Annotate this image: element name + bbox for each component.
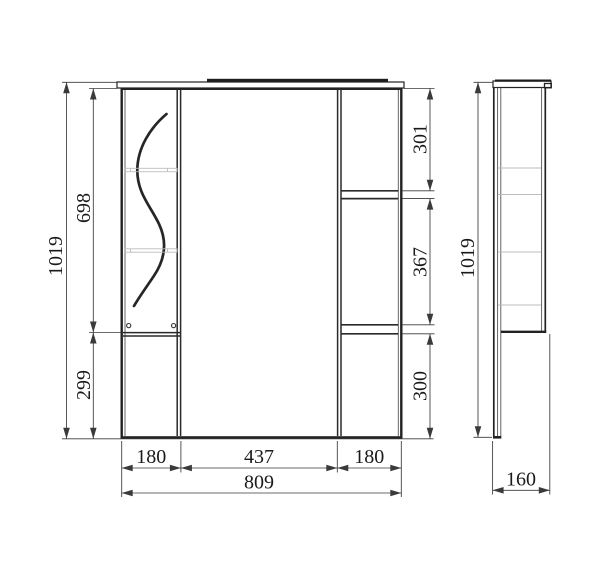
dim-label-depth: 160 [506,469,536,491]
left-shelf-edge [125,249,178,252]
dim-label-right-bottom: 300 [410,371,432,401]
side-view [493,81,551,438]
cornice-side [493,81,551,88]
furniture-technical-drawing: 1019 698 299 301 367 300 180 437 180 809 [0,0,600,579]
wave-ornament [134,114,167,306]
dim-label-total-height: 1019 [45,236,67,276]
dim-label-bottom-right: 180 [354,446,384,468]
front-view [117,79,404,438]
side-dimensions: 1019 160 [457,82,550,494]
dim-label-right-top: 301 [410,124,432,154]
door-fitting-dot [127,324,131,328]
dim-label-bottom-middle: 437 [244,446,274,468]
left-tall-door [123,114,180,336]
cornice-side-step [545,84,552,88]
dim-label-side-height: 1019 [457,238,479,278]
right-column-divider-top [341,191,398,199]
cabinet-body-outline [122,89,402,438]
front-dimensions: 1019 698 299 301 367 300 180 437 180 809 [45,82,435,497]
dim-label-right-middle: 367 [410,247,432,277]
dim-label-bottom-left: 180 [136,446,166,468]
dim-label-total-width: 809 [244,472,274,494]
dim-label-left-top: 698 [73,193,95,223]
door-fitting-dot [172,324,176,328]
right-column-divider-bottom [341,325,398,334]
dim-label-left-bottom: 299 [73,370,95,400]
drawing-canvas: 1019 698 299 301 367 300 180 437 180 809 [0,0,600,579]
cornice-front [117,82,404,88]
left-shelf-edge [125,168,178,171]
